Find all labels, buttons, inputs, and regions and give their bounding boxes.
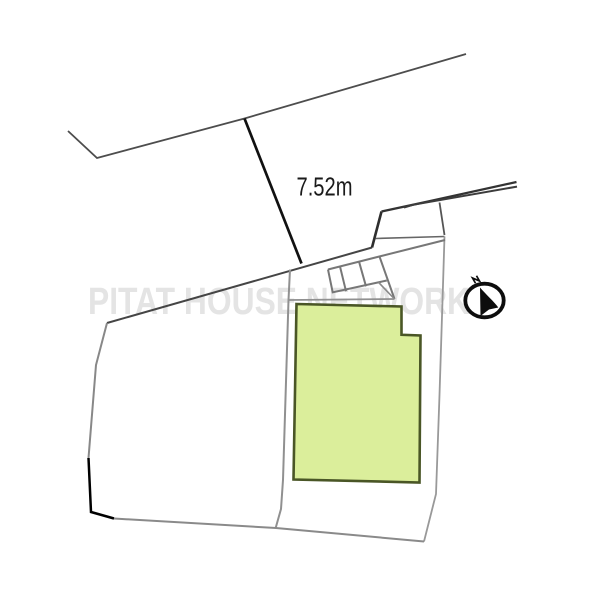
svg-text:7.52m: 7.52m	[297, 174, 353, 202]
svg-text:PITAT HOUSE NETWORK: PITAT HOUSE NETWORK	[88, 281, 470, 323]
